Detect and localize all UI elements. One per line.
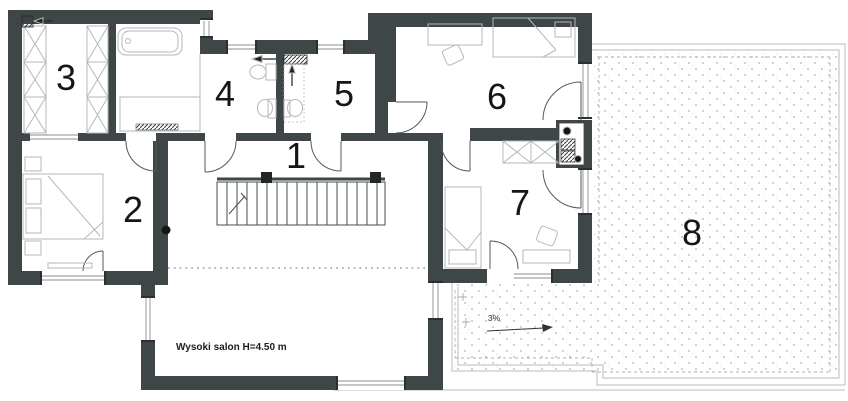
column [162, 226, 171, 235]
door-room6 [396, 102, 427, 133]
window-room2-south [40, 271, 106, 285]
chair-icon [441, 44, 464, 66]
window-north-1 [226, 40, 257, 54]
wall-room4-room5 [276, 54, 284, 141]
desk-icon [428, 24, 482, 45]
stair-treads [227, 182, 377, 225]
toilet-icon [250, 64, 276, 80]
door-room2 [126, 141, 156, 171]
nightstand-icon [25, 157, 41, 171]
chair-icon [536, 225, 558, 246]
wall-room3-room4 [108, 24, 116, 134]
window-step-wall [200, 18, 213, 38]
wardrobe-icon [87, 26, 108, 133]
wardrobe-icon [24, 26, 46, 133]
wardrobe-icon [503, 141, 559, 163]
floor-plan: 3% [0, 0, 848, 401]
wall-north-right [368, 13, 592, 27]
door-room4 [205, 141, 236, 172]
opening-room7-terrace-door [487, 269, 514, 283]
stair-break-mark [229, 193, 247, 214]
bathtub-icon [118, 28, 182, 55]
door-room7-south [490, 241, 518, 269]
sink-icon [258, 99, 277, 118]
salon-height-note: Wysoki salon H=4.50 m [176, 342, 287, 353]
nightstand-icon [25, 241, 41, 255]
bed-icon [445, 187, 481, 268]
door-room7 [441, 141, 470, 171]
desk-icon [523, 250, 570, 263]
radiator-icon [48, 263, 92, 268]
room-label-1: 1 [286, 135, 306, 176]
wall-north-step-right [368, 13, 382, 54]
wall-east-upper [578, 27, 592, 62]
window-salon-east [428, 281, 443, 320]
wall-east-lower [578, 215, 592, 271]
terrace-gravel-texture [592, 53, 838, 372]
room-label-2: 2 [123, 189, 143, 230]
room-label-5: 5 [334, 73, 354, 114]
bath-mat [136, 124, 178, 130]
railing-post [370, 172, 381, 183]
double-bed-icon [23, 174, 103, 239]
chimney-flues [559, 123, 584, 165]
room-label-6: 6 [487, 76, 507, 117]
opening-room5-door [311, 133, 341, 141]
flue-grille-icon [284, 55, 307, 64]
opening-room2-door [126, 133, 156, 141]
opening-room7-door [445, 128, 470, 141]
railing-post [261, 172, 272, 183]
window-room7-south [514, 269, 553, 283]
floor-plan-drawing: 3% [0, 0, 848, 401]
terrace-gravel-texture-lower [452, 284, 592, 372]
door-room6-terrace [543, 82, 581, 120]
door-room7-terrace [543, 170, 581, 208]
room-label-4: 4 [215, 73, 235, 114]
door-room5 [311, 141, 341, 171]
room-label-8: 8 [682, 212, 702, 253]
wall-bedroom2-east [153, 133, 168, 285]
wall-west [8, 10, 22, 285]
window-north-2 [316, 40, 345, 54]
wall-room6-west [382, 27, 396, 102]
sink-icon [284, 100, 303, 118]
vent-arrow-icon [252, 56, 276, 63]
slope-label: 3% [488, 313, 501, 323]
room-label-7: 7 [510, 182, 530, 223]
terrace-door-room6-glazing [578, 62, 592, 120]
opening-room3 [30, 133, 78, 141]
staircase-outline [217, 182, 385, 225]
stairs-and-void [162, 172, 429, 268]
room-label-3: 3 [56, 57, 76, 98]
opening-room4-door [205, 133, 236, 141]
up-arrow-icon [289, 64, 295, 86]
window-salon-west [141, 296, 155, 342]
flue-grille-icon [22, 16, 33, 27]
window-salon-south [336, 376, 406, 390]
wall-salon-east [428, 133, 443, 390]
